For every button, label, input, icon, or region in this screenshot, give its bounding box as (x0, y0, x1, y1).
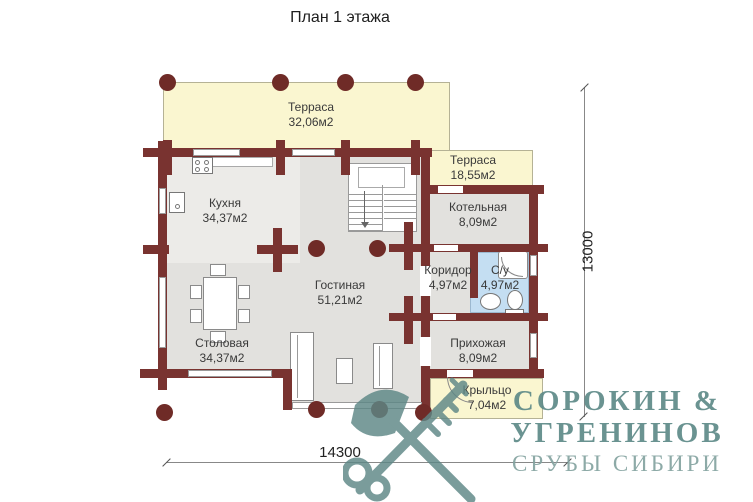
page-title: План 1 этажа (240, 9, 440, 27)
log-stub (389, 244, 422, 252)
log-stub (389, 313, 422, 321)
door-opening (433, 314, 456, 320)
window (159, 188, 166, 214)
wall-top (143, 148, 432, 157)
toilet-icon (507, 290, 523, 310)
company-watermark: СОРОКИН & УГРЕНИНОВ СРУБЫ СИБИРИ (497, 385, 737, 479)
log-post (308, 401, 325, 418)
room-area: 34,37м2 (167, 351, 277, 366)
log-stub (341, 140, 350, 175)
room-label-terrace-right: Терраса 18,55м2 (418, 153, 528, 183)
wall-bay-left (283, 369, 292, 410)
room-name: Котельная (423, 200, 533, 215)
window (292, 149, 335, 156)
window (188, 370, 272, 377)
room-name: Терраса (418, 153, 528, 168)
log-stub (538, 313, 548, 321)
stairs-arrow-head (361, 222, 369, 228)
room-area: 8,09м2 (423, 351, 533, 366)
dimension-label-right: 13000 (580, 222, 597, 282)
log-post (369, 240, 386, 257)
log-post (308, 240, 325, 257)
log-post (159, 74, 176, 91)
room-name: Столовая (167, 336, 277, 351)
room-name: Кухня (170, 196, 280, 211)
company-tagline: СРУБЫ СИБИРИ (497, 449, 737, 479)
company-name-line2: УГРЕНИНОВ (497, 417, 737, 449)
room-label-boiler: Котельная 8,09м2 (423, 200, 533, 230)
floor-plan: План 1 этажа (0, 0, 753, 502)
room-label-terrace-top: Терраса 32,06м2 (256, 100, 366, 130)
room-label-living: Гостиная 51,21м2 (285, 278, 395, 308)
log-stub (143, 245, 169, 254)
room-area: 4,97м2 (445, 278, 555, 293)
dining-table-icon (203, 277, 237, 330)
log-post (272, 74, 289, 91)
door-opening (438, 186, 463, 193)
room-area: 32,06м2 (256, 115, 366, 130)
log-stub (158, 378, 167, 390)
room-name: Терраса (256, 100, 366, 115)
log-post (156, 404, 173, 421)
room-area: 51,21м2 (285, 293, 395, 308)
log-stub (276, 140, 285, 175)
room-name: С/у (445, 263, 555, 278)
sofa-icon (290, 332, 314, 401)
room-name: Прихожая (423, 336, 533, 351)
chair-icon (210, 264, 226, 276)
kitchen-counter (211, 157, 273, 167)
log-post (407, 74, 424, 91)
chair-icon (190, 285, 202, 299)
stairs-treads-right (384, 189, 416, 219)
company-name-line1: СОРОКИН & (497, 385, 737, 417)
stairs-divider (382, 185, 383, 232)
log-stub (538, 244, 548, 252)
log-stub (257, 245, 298, 254)
room-name: Гостиная (285, 278, 395, 293)
stove-icon (192, 157, 213, 174)
room-label-bathroom: С/у 4,97м2 (445, 263, 555, 293)
room-label-hallway: Прихожая 8,09м2 (423, 336, 533, 366)
axe-key-logo-icon (343, 375, 503, 502)
stairs-arrow (364, 191, 365, 222)
chair-icon (238, 285, 250, 299)
chair-icon (238, 309, 250, 323)
room-label-kitchen: Кухня 34,37м2 (170, 196, 280, 226)
log-stub (163, 140, 172, 175)
room-area: 34,37м2 (170, 211, 280, 226)
room-area: 8,09м2 (423, 215, 533, 230)
chair-icon (190, 309, 202, 323)
window (159, 277, 166, 348)
washbasin-icon (480, 293, 501, 310)
window (193, 149, 240, 156)
door-opening (434, 245, 458, 251)
room-label-dining: Столовая 34,37м2 (167, 336, 277, 366)
log-post (337, 74, 354, 91)
room-area: 18,55м2 (418, 168, 528, 183)
